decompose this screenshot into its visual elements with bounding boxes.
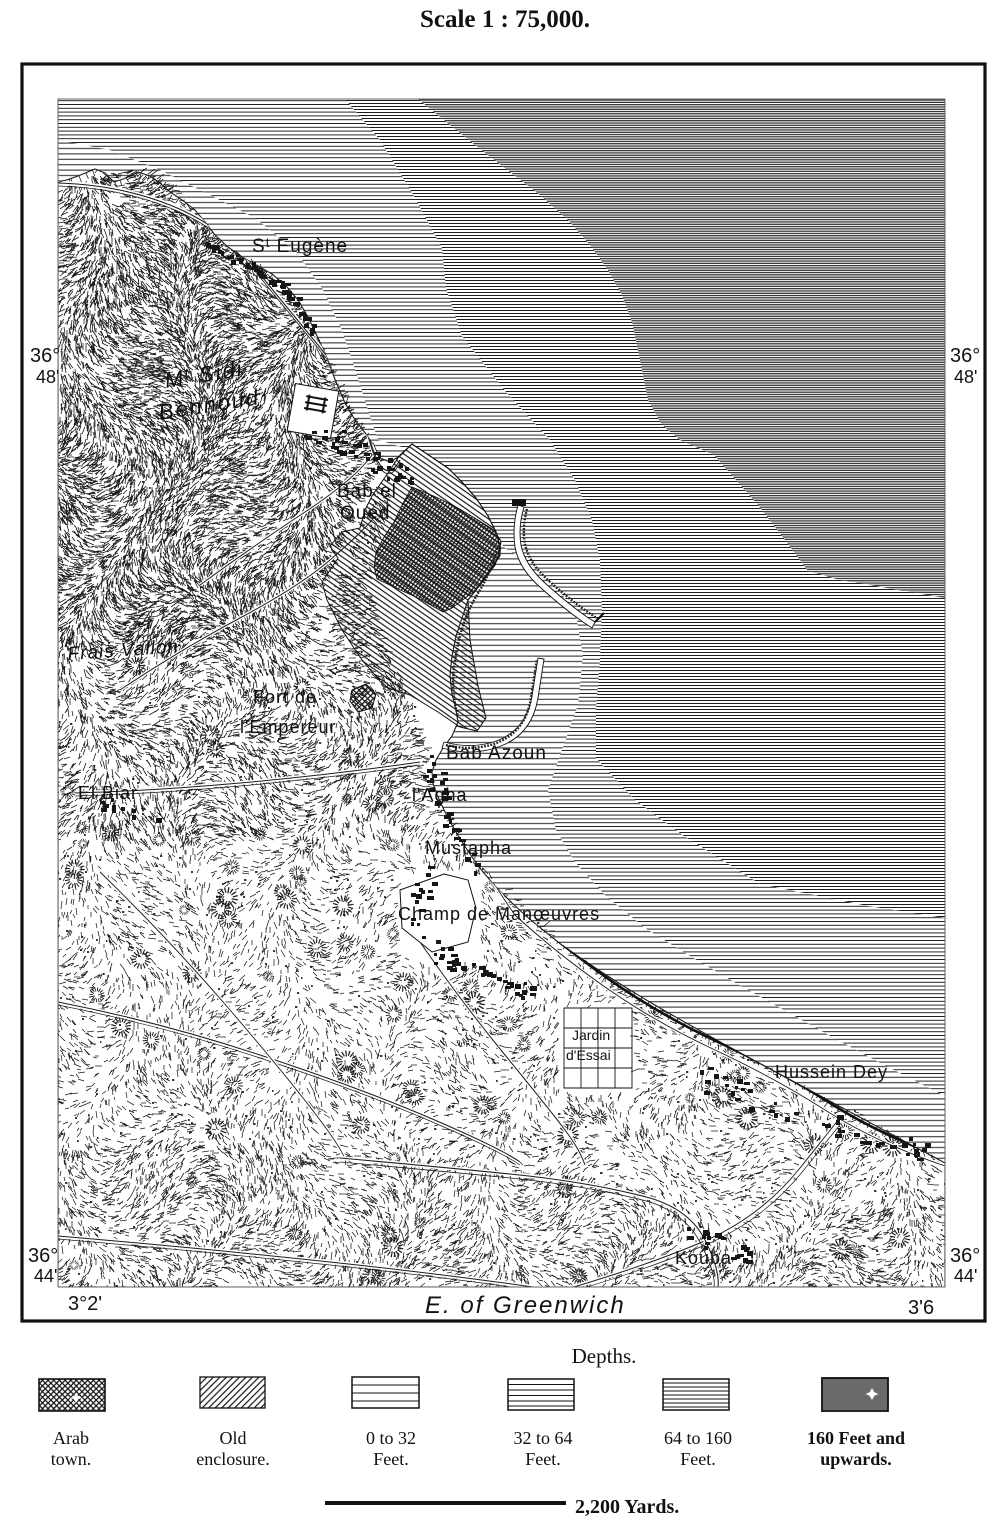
svg-text:2,200 Yards.: 2,200 Yards. — [575, 1496, 679, 1518]
svg-text:3'6: 3'6 — [908, 1297, 934, 1319]
svg-text:Kouba: Kouba — [675, 1248, 732, 1268]
svg-text:enclosure.: enclosure. — [196, 1449, 269, 1469]
svg-text:l'Agha: l'Agha — [412, 785, 467, 805]
svg-text:d'Essai: d'Essai — [566, 1047, 611, 1063]
svg-text:32 to 64: 32 to 64 — [513, 1428, 572, 1448]
svg-text:E. of Greenwich: E. of Greenwich — [425, 1292, 626, 1319]
svg-text:36°: 36° — [950, 345, 980, 367]
svg-text:44': 44' — [34, 1266, 57, 1286]
svg-text:l'Empereur: l'Empereur — [240, 717, 336, 737]
svg-text:El Biar: El Biar — [78, 783, 138, 803]
svg-text:0 to 32: 0 to 32 — [366, 1428, 416, 1448]
svg-text:Scale 1 : 75,000.: Scale 1 : 75,000. — [420, 6, 590, 33]
svg-text:48': 48' — [36, 367, 59, 387]
svg-text:Fort de: Fort de — [253, 687, 317, 707]
svg-text:36°: 36° — [28, 1245, 58, 1267]
svg-text:Feet.: Feet. — [680, 1449, 716, 1469]
svg-text:Jardin: Jardin — [572, 1027, 610, 1043]
svg-text:3°2': 3°2' — [68, 1293, 102, 1315]
svg-text:Bab el: Bab el — [337, 481, 397, 502]
svg-text:160 Feet and: 160 Feet and — [807, 1428, 905, 1448]
svg-text:36°: 36° — [950, 1245, 980, 1267]
svg-text:Champ de Manœuvres: Champ de Manœuvres — [398, 904, 600, 924]
svg-text:town.: town. — [51, 1449, 92, 1469]
svg-text:Feet.: Feet. — [373, 1449, 409, 1469]
svg-text:44': 44' — [954, 1266, 977, 1286]
svg-text:64 to 160: 64 to 160 — [664, 1428, 732, 1448]
svg-text:upwards.: upwards. — [820, 1449, 892, 1469]
svg-text:Arab: Arab — [53, 1428, 89, 1448]
svg-text:Mustapha: Mustapha — [425, 838, 512, 858]
svg-text:36°: 36° — [30, 345, 60, 367]
svg-text:Old: Old — [220, 1428, 247, 1448]
svg-text:Depths.: Depths. — [572, 1344, 637, 1368]
svg-text:Bab Azoun: Bab Azoun — [446, 743, 547, 764]
svg-text:Feet.: Feet. — [525, 1449, 561, 1469]
svg-text:48': 48' — [954, 367, 977, 387]
svg-text:Oued: Oued — [340, 503, 390, 524]
svg-text:Hussein Dey: Hussein Dey — [775, 1062, 888, 1082]
